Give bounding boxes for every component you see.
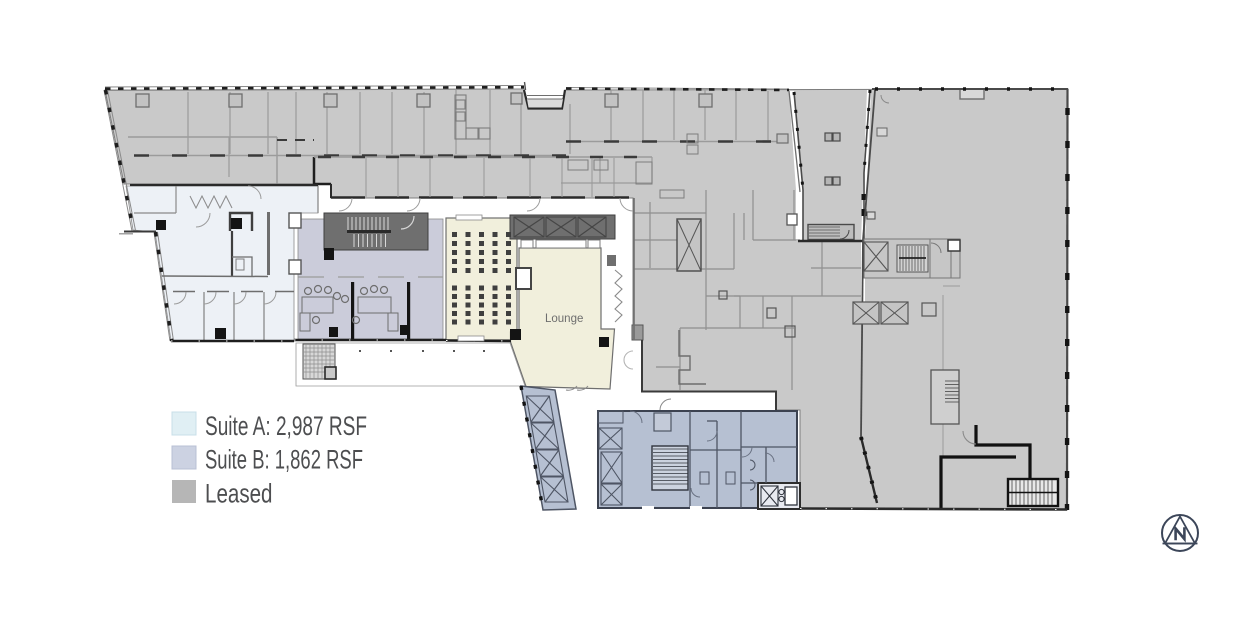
svg-text:Suite B: 1,862 RSF: Suite B: 1,862 RSF bbox=[205, 445, 363, 475]
svg-text:Leased: Leased bbox=[205, 479, 273, 509]
svg-text:Lounge: Lounge bbox=[545, 313, 583, 325]
svg-text:Suite A: 2,987 RSF: Suite A: 2,987 RSF bbox=[205, 411, 367, 441]
